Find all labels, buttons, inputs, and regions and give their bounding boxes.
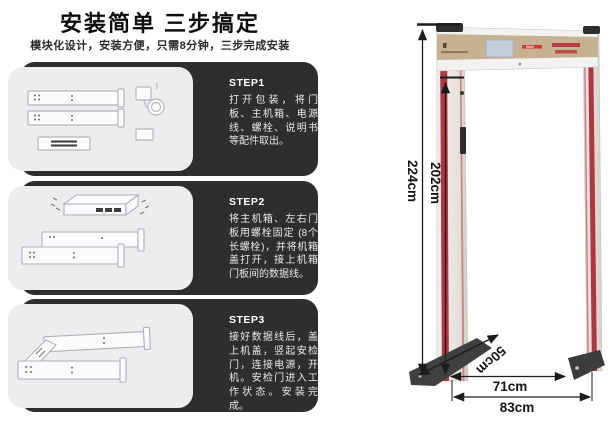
step1-illustration-card: [8, 67, 193, 171]
screw-dot: [519, 63, 522, 66]
step2-assemble-illustration: [8, 186, 193, 290]
step1-label: STEP1: [229, 77, 318, 89]
right-corner-cap: [583, 26, 600, 34]
outer-height-label: 224cm: [405, 160, 420, 202]
lcd-screen: [486, 40, 513, 57]
gate-left-post: [437, 29, 468, 381]
step2-label: STEP2: [229, 196, 318, 208]
gate-diagram: 224cm 202cm 50cm 71cm 83cm: [393, 3, 615, 430]
page-subtitle: 模块化设计，安装方便，只需8分钟，三步完成安装: [0, 37, 320, 53]
gate-right-post: [583, 34, 602, 371]
step2-illustration-card: [8, 186, 193, 290]
outer-width-label: 83cm: [500, 400, 535, 415]
step3-illustration-card: [8, 304, 193, 408]
inner-width-label: 71cm: [493, 379, 528, 394]
brand-text-marks: [441, 51, 468, 53]
inner-height-label: 202cm: [428, 162, 443, 204]
step1-description: 打开包装，将门板、主机箱、电源线、螺栓、说明书等配件取出。: [229, 94, 318, 149]
gate-crossbar: [437, 27, 598, 71]
step3-label: STEP3: [229, 314, 318, 326]
page-root: { "header": { "title": "安装简单 三步搞定", "sub…: [0, 0, 615, 430]
post-counter-module: [460, 127, 466, 154]
brand-logo-mark: [443, 43, 447, 48]
led-display: [522, 45, 542, 49]
step1-unpack-illustration: [8, 67, 193, 171]
step2-description: 将主机箱、左右门板用螺栓固定 (8个长螺栓)，并将机箱盖打开，接上机箱门板间的数…: [229, 213, 318, 282]
gate-diagram-svg: 224cm 202cm 50cm 71cm 83cm: [393, 3, 615, 430]
right-base-foot: [568, 350, 605, 380]
step3-finish-illustration: [8, 304, 193, 408]
step3-description: 接好数据线后，盖上机盖，竖起安检门，连接电源，开机。安检门进入工作状态。安装完成…: [229, 331, 318, 414]
page-title: 安装简单 三步搞定: [0, 6, 320, 38]
ir-sensor-dot: [460, 91, 464, 95]
